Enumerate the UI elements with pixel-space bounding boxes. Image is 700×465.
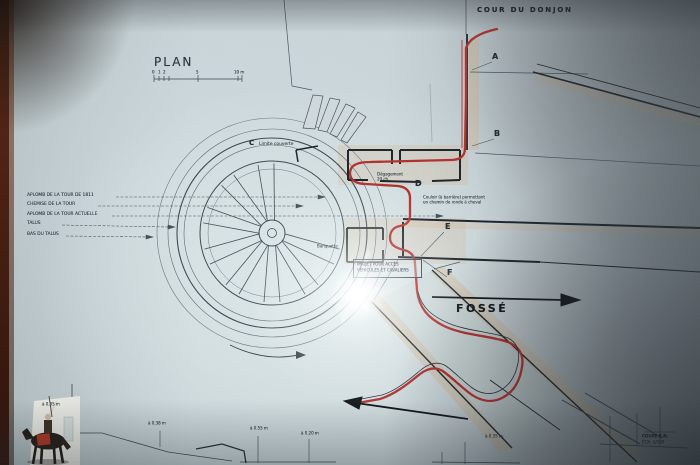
moat-arrow-right [561, 294, 580, 306]
point-label-d: D [415, 179, 422, 188]
legend-item-chemise: CHEMISE DE LA TOUR [27, 201, 75, 206]
point-label-e: E [445, 222, 451, 231]
plan-drawing [0, 0, 700, 465]
title-block-line2: ÉCH. 1/100 [642, 440, 664, 445]
scale-bar [154, 75, 242, 82]
photo-left-edge [0, 0, 9, 465]
moat-arrow-left [344, 397, 362, 409]
title-block-line1: COUPE B.N. [642, 434, 668, 439]
photo-left-edge-highlight [9, 0, 14, 465]
plan-title: PLAN [154, 56, 193, 70]
point-label-a: A [492, 52, 499, 61]
path-direction-arrow [296, 351, 306, 359]
scale-label-10m: 10 m [234, 70, 244, 75]
point-label-b: B [494, 129, 501, 138]
dimension-label-5: à 0.35 m. [485, 434, 504, 439]
clearance-note-line1: Dégagement [377, 172, 403, 177]
dimension-label-4: à 0.20 m [301, 431, 319, 436]
point-d-note-line2: un chemin de ronde à cheval [423, 200, 481, 205]
buttress-fan [303, 95, 366, 143]
moat-area-label: FOSSÉ [456, 303, 508, 316]
tower-spokes [203, 164, 339, 302]
legend-item-talus: TALUS [27, 220, 41, 225]
scale-label-1: 1 [158, 70, 161, 75]
legend-item-aplomb-1811: APLOMB DE LA TOUR DE 1811 [27, 192, 94, 197]
scale-label-5: 5 [196, 70, 199, 75]
dimension-label-1: à 0.35 m [42, 402, 60, 407]
courtyard-area-label: COUR DU DONJON [477, 6, 573, 14]
scale-label-0: 0 [152, 70, 155, 75]
point-label-c: C [249, 139, 255, 147]
banquette-note: Banquette [317, 244, 338, 249]
project-note-line2: VÉHICULES ET CAVALIERS [357, 268, 409, 273]
photo-of-castle-plan: PLAN COUR DU DONJON FOSSÉ A B C D E F Li… [0, 0, 700, 465]
legend-item-aplomb-actuelle: APLOMB DE LA TOUR ACTUELLE [27, 211, 97, 216]
point-d-note-line1: Couloir (à barrière) permettant [423, 195, 485, 200]
dimension-label-3: à 0.55 m [250, 426, 268, 431]
scale-label-2: 2 [163, 70, 166, 75]
dimension-label-2: à 0.38 m [148, 421, 166, 426]
legend-item-bas-du-talus: BAS DU TALUS [27, 231, 59, 236]
clearance-note-line2: 20 ch. [377, 177, 389, 182]
project-note-line1: PROJET POUR ACCÈS [357, 262, 399, 267]
point-label-f: F [447, 268, 453, 277]
point-c-note: Limite couverte [259, 141, 293, 146]
project-note-box: PROJET POUR ACCÈS VÉHICULES ET CAVALIERS [353, 259, 422, 278]
